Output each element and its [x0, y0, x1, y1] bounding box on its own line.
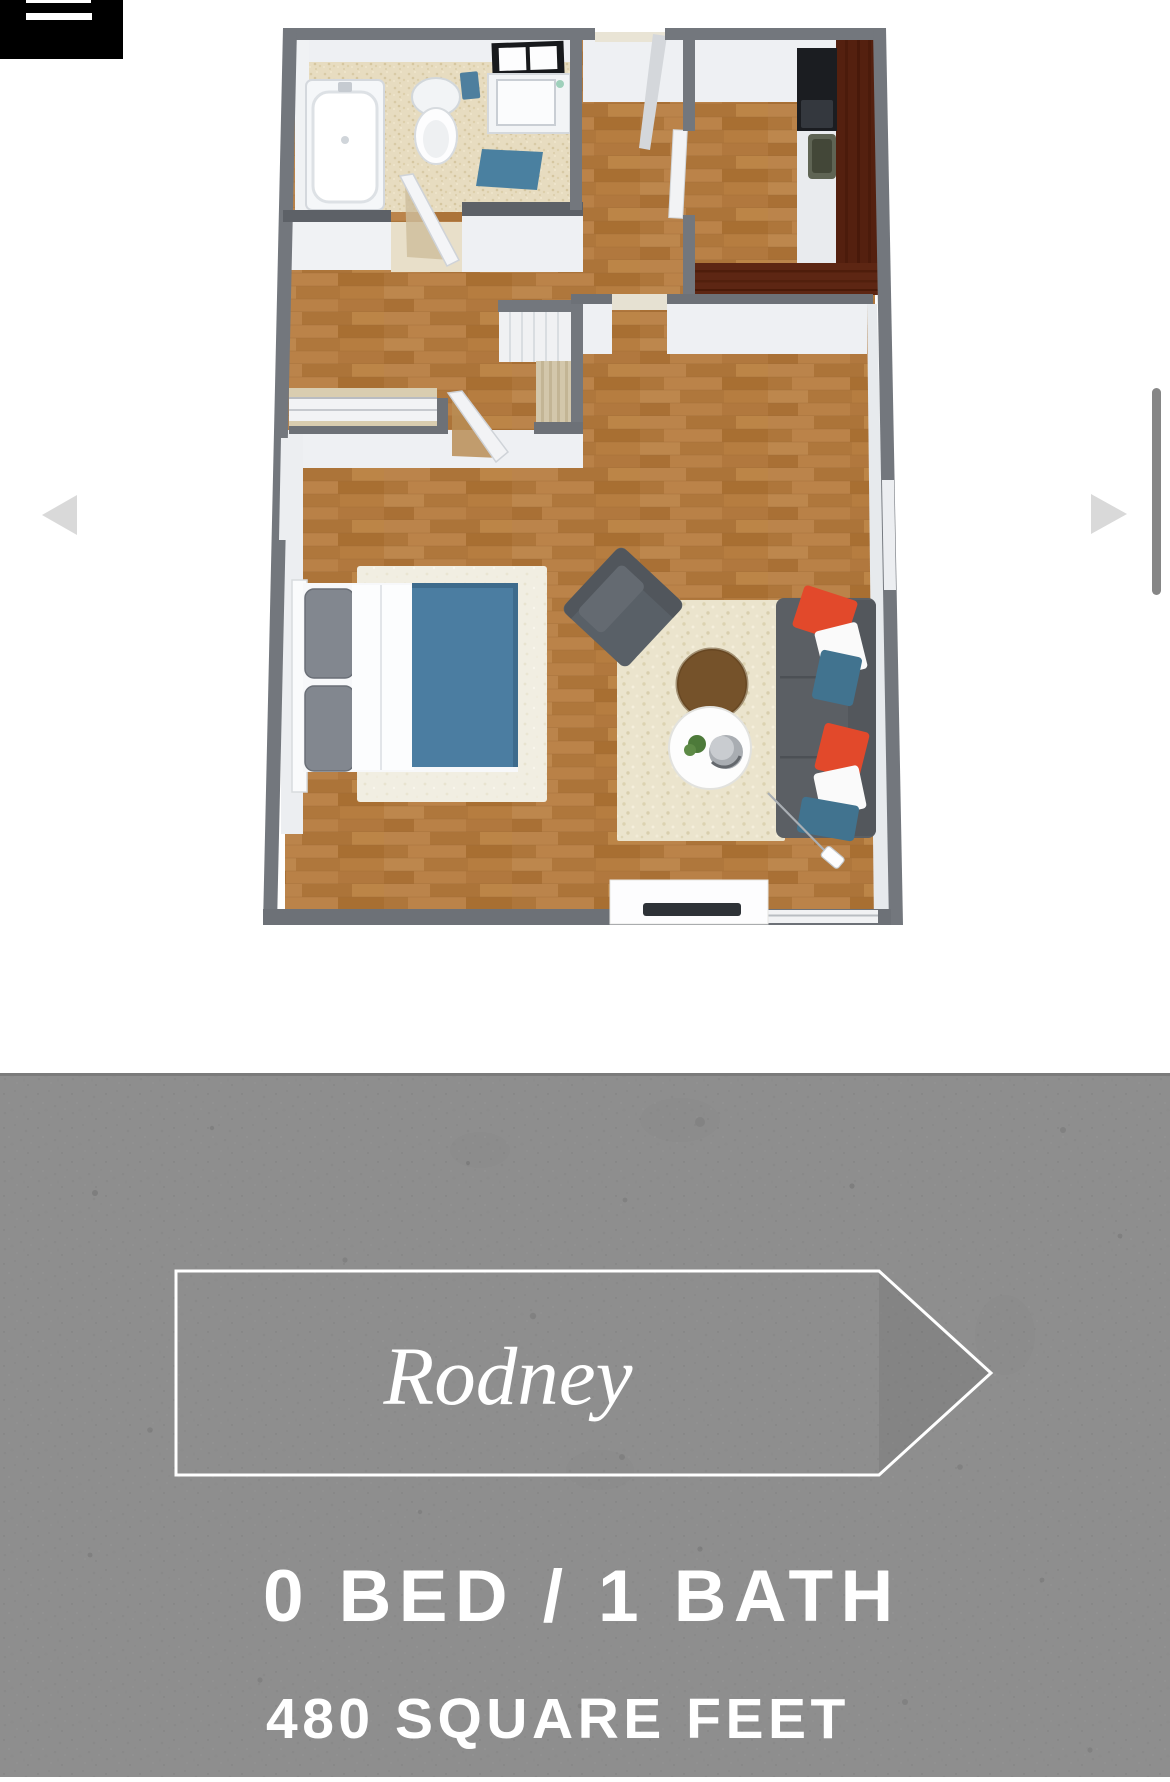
svg-text:480 SQUARE FEET: 480 SQUARE FEET [266, 1687, 850, 1751]
svg-text:Rodney: Rodney [383, 1330, 633, 1422]
svg-text:0 BED / 1 BATH: 0 BED / 1 BATH [263, 1556, 901, 1637]
